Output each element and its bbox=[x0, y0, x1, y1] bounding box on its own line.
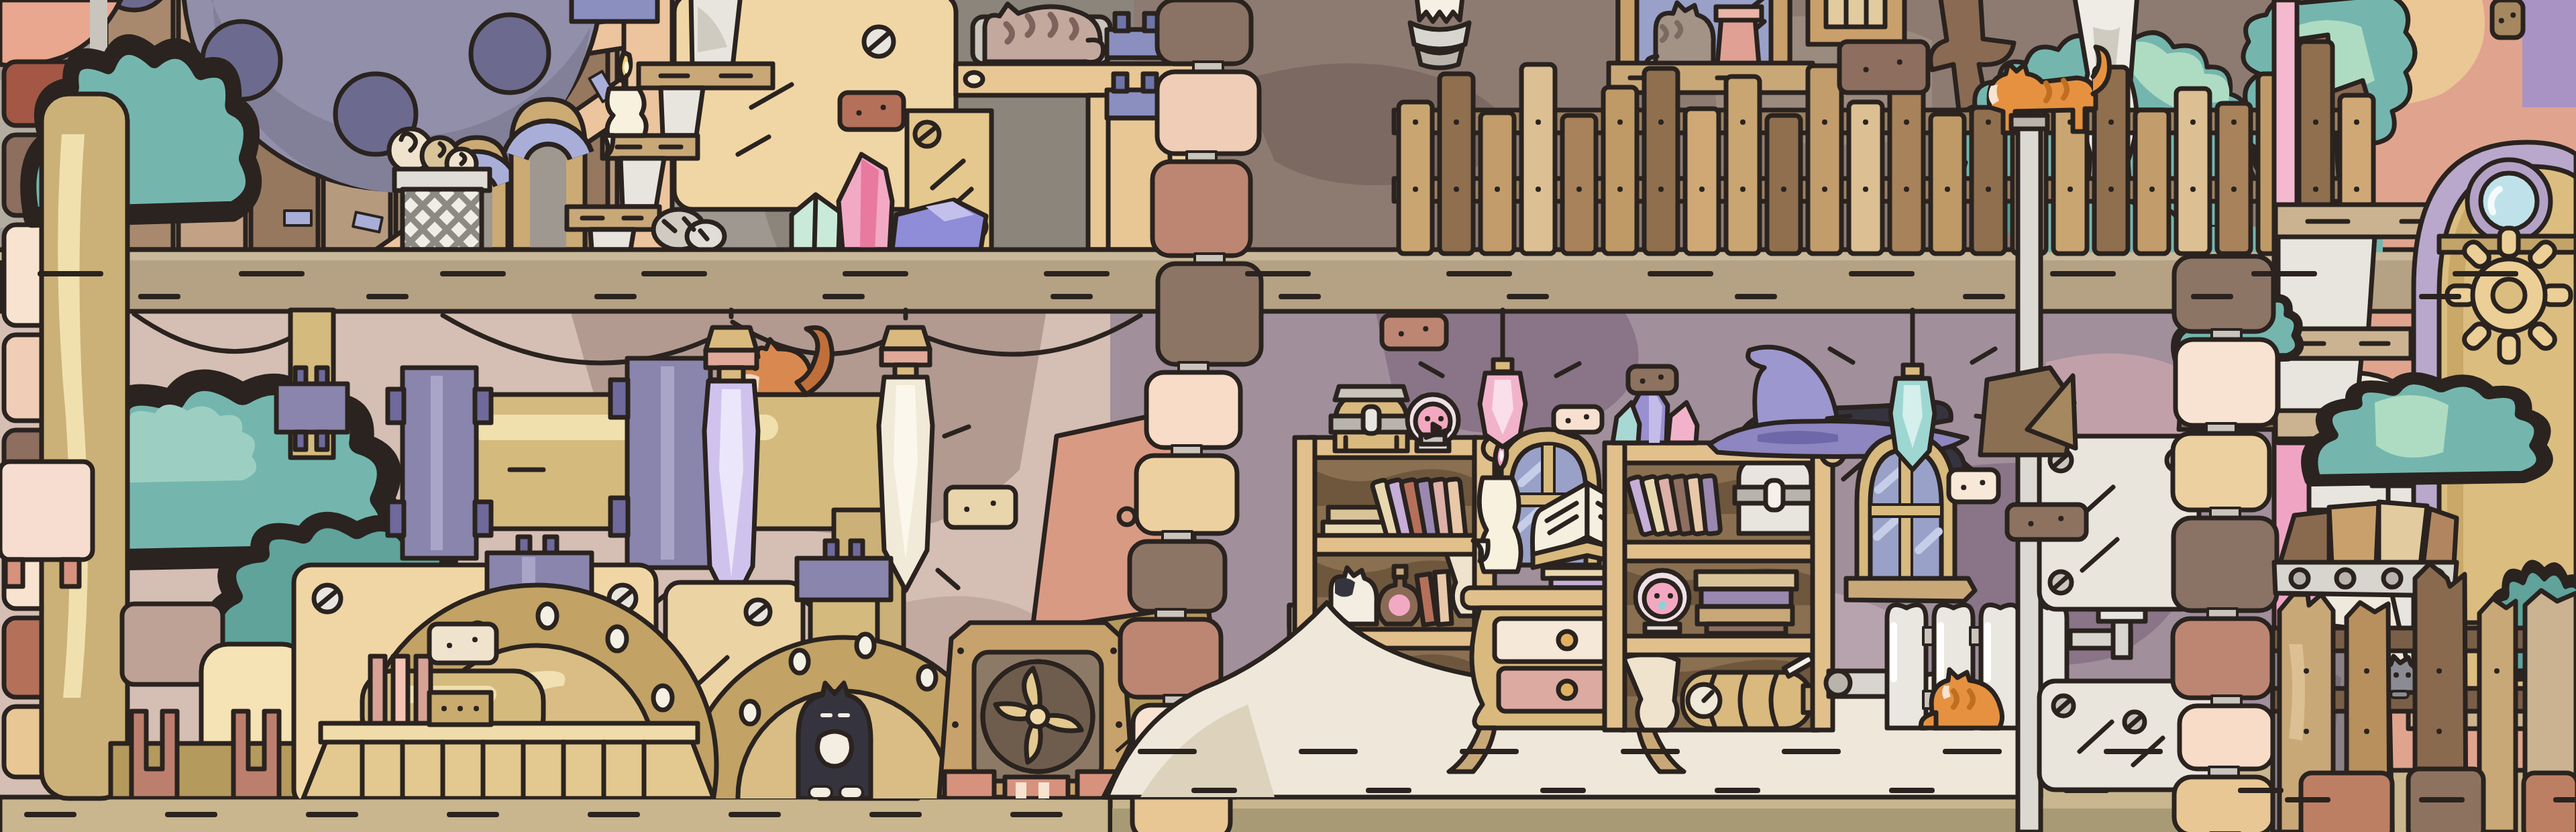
floating-brick bbox=[1839, 42, 1928, 93]
fence-plank bbox=[1481, 113, 1514, 254]
stone-block bbox=[2173, 433, 2269, 510]
brick-dot bbox=[881, 105, 886, 110]
window-sill bbox=[1846, 578, 1975, 601]
fence-nail bbox=[2313, 119, 2318, 125]
brick-dot bbox=[1399, 331, 1404, 337]
fence-nail bbox=[2190, 187, 2196, 192]
floating-brick bbox=[1628, 366, 1676, 393]
fence-nail bbox=[1413, 119, 1418, 125]
fence-nail bbox=[2190, 119, 2196, 125]
crystal-ball[interactable] bbox=[1407, 395, 1458, 451]
fence-nail bbox=[2108, 187, 2114, 192]
treasure-chest[interactable] bbox=[1331, 386, 1411, 451]
fence-plank bbox=[1562, 115, 1596, 254]
floating-brick bbox=[1554, 407, 1602, 432]
pipe-coupling bbox=[388, 368, 491, 558]
stone-block-column-right bbox=[2173, 256, 2277, 832]
fence-plank bbox=[2176, 89, 2210, 254]
wall-lavender-corner bbox=[2522, 0, 2576, 107]
stone-block bbox=[2174, 777, 2273, 832]
fence-nail bbox=[2108, 119, 2114, 125]
fence-nail bbox=[1986, 187, 1991, 192]
book-spine[interactable] bbox=[1700, 475, 1721, 534]
book-stacks[interactable] bbox=[1696, 572, 1796, 633]
fence-nail bbox=[1699, 187, 1705, 192]
fence-plank bbox=[1931, 114, 1964, 254]
brick-dot bbox=[1423, 326, 1428, 331]
fence-nail bbox=[1536, 187, 1541, 192]
small-window bbox=[1808, 0, 1904, 44]
fence-plank bbox=[2135, 110, 2169, 254]
brick-dot bbox=[472, 637, 478, 642]
fence-nail bbox=[1658, 119, 1664, 125]
fence-nail bbox=[1945, 187, 1950, 192]
brick-dot bbox=[1566, 418, 1571, 423]
scene-canvas bbox=[0, 0, 2576, 832]
fence-plank bbox=[2217, 103, 2251, 254]
fence-plank bbox=[1767, 115, 1801, 254]
brick-dot bbox=[964, 507, 969, 512]
fence-nail bbox=[1658, 187, 1664, 192]
book-spine[interactable] bbox=[1445, 478, 1466, 537]
fence-nail bbox=[1536, 119, 1541, 125]
radiator-valve[interactable] bbox=[1826, 671, 1850, 695]
sun-emblem bbox=[2447, 228, 2571, 362]
floating-brick bbox=[946, 487, 1016, 527]
leaning-books[interactable] bbox=[1627, 475, 1721, 535]
flower-pot[interactable] bbox=[1717, 17, 1759, 64]
floating-brick bbox=[429, 624, 496, 663]
stone-block bbox=[2173, 518, 2277, 611]
barrel-fan-structure bbox=[2273, 378, 2576, 832]
window-with-cat bbox=[1609, 0, 1813, 93]
fence-nail bbox=[2231, 187, 2237, 192]
fence-nail bbox=[1495, 187, 1500, 192]
fence-nail bbox=[1781, 187, 1786, 192]
brick-dot bbox=[2510, 12, 2516, 17]
fence-nail bbox=[1740, 187, 1746, 192]
fence-nail bbox=[1617, 187, 1623, 192]
brick-dot bbox=[447, 643, 452, 648]
fence-nail bbox=[2313, 187, 2318, 192]
floating-brick bbox=[2007, 505, 2086, 539]
floating-brick bbox=[1382, 315, 1446, 349]
fence-nail bbox=[2149, 187, 2155, 192]
fence-nail bbox=[1454, 119, 1459, 125]
brick-dot bbox=[2499, 18, 2504, 23]
crystal-ball-2[interactable] bbox=[1635, 570, 1689, 632]
fence-nail bbox=[1863, 119, 1868, 125]
fence-plank bbox=[1808, 66, 1841, 254]
fence-nail bbox=[2354, 119, 2359, 125]
vent-fan[interactable] bbox=[939, 623, 1134, 798]
fence-nail bbox=[1740, 119, 1746, 125]
stone-block bbox=[1146, 372, 1240, 448]
brick-dot bbox=[991, 501, 996, 506]
fence-nail bbox=[1413, 187, 1418, 192]
fence-nail bbox=[1617, 119, 1623, 125]
stone-block bbox=[1136, 456, 1237, 533]
pink-box bbox=[0, 462, 93, 560]
floating-brick bbox=[1949, 470, 1998, 502]
brick-dot bbox=[1980, 480, 1985, 485]
brick-dot bbox=[1897, 59, 1902, 64]
illustration-stage bbox=[0, 0, 2576, 832]
fence-nail bbox=[2068, 187, 2073, 192]
stone-block bbox=[2176, 340, 2277, 425]
fence-nail bbox=[2354, 187, 2359, 192]
black-cat[interactable] bbox=[798, 683, 871, 798]
brick-dot bbox=[1658, 374, 1664, 380]
brick-dot bbox=[1640, 378, 1646, 384]
fence-nail bbox=[1576, 187, 1582, 192]
fence-plank bbox=[1890, 85, 1923, 254]
stone-block bbox=[1158, 264, 1261, 364]
stone-block bbox=[1130, 541, 1225, 611]
brick-dot bbox=[2058, 516, 2063, 521]
stone-block bbox=[1157, 0, 1251, 64]
fence-plank bbox=[1521, 64, 1555, 254]
brick-dot bbox=[1584, 414, 1589, 419]
fence-nail bbox=[1822, 119, 1827, 125]
hanging-pot-lantern[interactable] bbox=[1410, 0, 1469, 68]
fence-plank bbox=[1726, 76, 1760, 254]
fence-nail bbox=[1863, 187, 1868, 192]
silver-chest[interactable] bbox=[1735, 455, 1815, 533]
shelf-books-mid[interactable] bbox=[1417, 571, 1452, 625]
fence-plank bbox=[1972, 107, 2005, 254]
fence-plank bbox=[1440, 74, 1473, 254]
fence-plank bbox=[1603, 87, 1637, 254]
fence-plank bbox=[1644, 68, 1678, 254]
panel-screw bbox=[864, 27, 894, 56]
fence-plank bbox=[2094, 67, 2128, 254]
stone-block bbox=[2180, 706, 2273, 769]
fence-nail bbox=[1904, 187, 1909, 192]
fence-nail bbox=[1454, 187, 1459, 192]
brick-dot bbox=[857, 110, 862, 115]
stone-block bbox=[1152, 162, 1250, 256]
fence-plank bbox=[1685, 109, 1719, 254]
brick-dot bbox=[1864, 67, 1869, 72]
leaning-books[interactable] bbox=[1372, 478, 1466, 539]
brick-dot bbox=[2028, 521, 2033, 527]
fence-nail bbox=[2231, 119, 2237, 125]
stone-block bbox=[1157, 72, 1259, 154]
fence-nail bbox=[1904, 119, 1909, 125]
fence-nail bbox=[1986, 119, 1991, 125]
fence-nail bbox=[1822, 187, 1827, 192]
floating-brick bbox=[2492, 0, 2523, 38]
sleeping-tabby-cat[interactable] bbox=[985, 4, 1104, 62]
stone-block bbox=[2173, 619, 2272, 698]
brick-dot bbox=[1961, 484, 1966, 490]
floating-brick bbox=[840, 93, 904, 129]
